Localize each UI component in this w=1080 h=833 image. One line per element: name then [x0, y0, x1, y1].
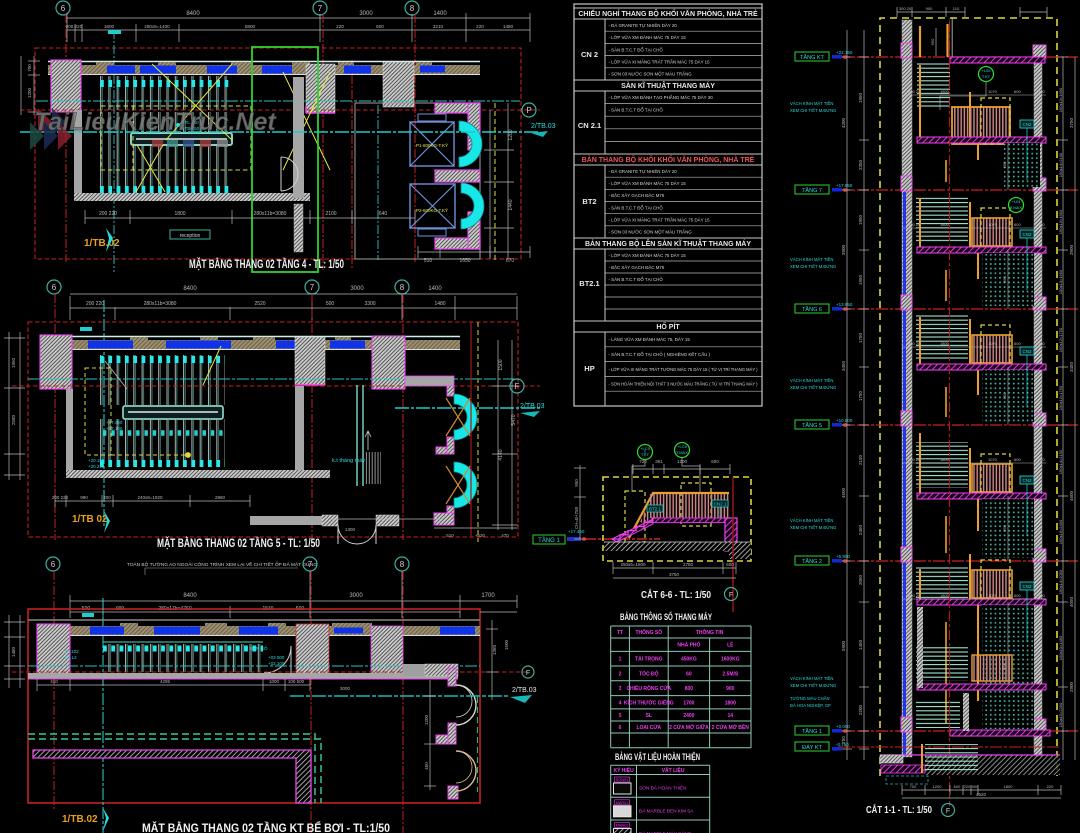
svg-text:- ĐÁ GRANITE TỰ NHIÊN DÀY 20: - ĐÁ GRANITE TỰ NHIÊN DÀY 20: [609, 169, 678, 174]
svg-text:470: 470: [501, 533, 509, 538]
svg-text:280x11b=3080: 280x11b=3080: [254, 211, 287, 217]
svg-text:+L04: +L04: [1011, 199, 1021, 204]
svg-text:5470: 5470: [511, 414, 517, 425]
svg-text:500: 500: [972, 784, 979, 789]
svg-text:MAR01: MAR01: [616, 801, 629, 805]
svg-text:VÁCH KÍNH MẶT TIỀN: VÁCH KÍNH MẶT TIỀN: [790, 518, 833, 523]
svg-text:2350: 2350: [858, 159, 863, 170]
svg-text:XEM CHI TIẾT M.ĐỨNG: XEM CHI TIẾT M.ĐỨNG: [790, 264, 836, 269]
svg-text:1/TB 02: 1/TB 02: [72, 514, 108, 525]
svg-text:MẶT BẰNG THANG 02 TẦNG 5 - T: MẶT BẰNG THANG 02 TẦNG 5 - TL: 1/50: [157, 537, 320, 550]
svg-text:- SƠN 03 NƯỚC SƠN MỘT MÀU TRẮN: - SƠN 03 NƯỚC SƠN MỘT MÀU TRẮNG: [609, 72, 693, 77]
svg-text:- LÁNG VỮA XM ĐÁNH MÁC 75, DÀY: - LÁNG VỮA XM ĐÁNH MÁC 75, DÀY 15: [609, 337, 691, 342]
svg-text:TẦNG 6: TẦNG 6: [802, 306, 822, 313]
svg-text:3750: 3750: [1069, 117, 1074, 128]
svg-text:150: 150: [1038, 593, 1045, 598]
svg-text:2900: 2900: [1069, 681, 1074, 692]
svg-text:ĐÁ MARBLE ĐEN KIM SA: ĐÁ MARBLE ĐEN KIM SA: [639, 807, 694, 813]
svg-text:1400: 1400: [428, 286, 442, 292]
svg-text:1200: 1200: [424, 714, 429, 725]
svg-text:1070: 1070: [988, 457, 998, 462]
svg-text:220: 220: [964, 784, 971, 789]
svg-text:+10.500: +10.500: [836, 418, 853, 423]
svg-text:200 220: 200 220: [86, 301, 104, 307]
svg-text:HP: HP: [584, 364, 594, 373]
svg-text:MẶT BẰNG THANG 02 TẦNG KT BỂ: MẶT BẰNG THANG 02 TẦNG KT BỂ BƠI - TL:1/…: [142, 822, 390, 833]
svg-text:1070: 1070: [988, 222, 998, 227]
svg-text:8: 8: [400, 560, 405, 569]
svg-text:1480: 1480: [11, 646, 16, 657]
svg-text:1700: 1700: [683, 700, 694, 706]
svg-text:CN2: CN2: [1022, 232, 1031, 237]
svg-text:- LỚP VỮA XM ĐÁNH MÁC 75 DÀY 1: - LỚP VỮA XM ĐÁNH MÁC 75 DÀY 15: [609, 253, 687, 258]
svg-text:2/TB.03: 2/TB.03: [531, 123, 556, 130]
svg-text:+20.216: +20.216: [88, 464, 105, 469]
svg-text:600: 600: [954, 784, 961, 789]
svg-text:4140: 4140: [498, 449, 504, 460]
svg-text:600: 600: [1014, 89, 1021, 94]
svg-text:1500: 1500: [498, 359, 504, 370]
svg-text:2.5M/S: 2.5M/S: [722, 671, 739, 677]
svg-text:CN2: CN2: [1022, 478, 1031, 483]
svg-text:2750: 2750: [683, 562, 694, 567]
svg-text:950: 950: [1002, 524, 1007, 531]
svg-text:700: 700: [27, 64, 32, 72]
svg-text:3000: 3000: [359, 11, 373, 17]
svg-text:720: 720: [639, 459, 647, 464]
svg-text:800: 800: [685, 686, 694, 692]
svg-text:+03.000: +03.000: [268, 655, 285, 660]
svg-text:P: P: [526, 106, 531, 115]
svg-text:361: 361: [655, 459, 663, 464]
svg-text:+630: +630: [475, 533, 486, 538]
svg-text:1750: 1750: [858, 390, 863, 401]
svg-text:3450: 3450: [1069, 361, 1074, 372]
svg-text:1800: 1800: [1004, 784, 1014, 789]
svg-text:2050: 2050: [858, 574, 863, 585]
svg-text:220: 220: [476, 24, 484, 29]
svg-text:110: 110: [953, 6, 960, 11]
svg-text:6: 6: [52, 283, 57, 292]
svg-text:600: 600: [1014, 593, 1021, 598]
svg-text:2200: 2200: [858, 704, 863, 715]
svg-text:3750: 3750: [669, 572, 680, 577]
svg-text:TẦNG KT: TẦNG KT: [800, 54, 824, 61]
svg-text:2520: 2520: [254, 301, 265, 307]
svg-text:1480: 1480: [434, 301, 445, 307]
svg-text:CN 2: CN 2: [581, 50, 598, 59]
svg-text:+LC5: +LC5: [677, 444, 687, 449]
svg-text:600: 600: [711, 459, 719, 464]
svg-text:KÝ HIỆU: KÝ HIỆU: [613, 766, 634, 774]
svg-text:2450: 2450: [858, 524, 863, 535]
svg-text:300 20: 300 20: [908, 89, 921, 94]
svg-text:- SƠN 03 NƯỚC SƠN MỘT MÀU TRẮN: - SƠN 03 NƯỚC SƠN MỘT MÀU TRẮNG: [609, 230, 693, 235]
svg-text:150: 150: [1038, 222, 1045, 227]
svg-text:300 20: 300 20: [908, 593, 921, 598]
svg-text:8400: 8400: [183, 286, 197, 292]
svg-text:- SÀN B.T.C.T ĐỔ TẠI CHỖ: - SÀN B.T.C.T ĐỔ TẠI CHỖ: [609, 277, 664, 282]
svg-text:1/TB.02: 1/TB.02: [62, 814, 98, 825]
svg-text:150x16=2450: 150x16=2450: [1058, 519, 1063, 544]
svg-text:200 220: 200 220: [52, 495, 69, 500]
svg-text:150x13=1950: 150x13=1950: [1058, 269, 1063, 294]
svg-text:1800: 1800: [940, 89, 950, 94]
svg-text:- SÀN B.T.C.T ĐỔ TẠI CHỖ: - SÀN B.T.C.T ĐỔ TẠI CHỖ: [609, 47, 664, 52]
svg-text:150x13=1950: 150x13=1950: [1058, 209, 1063, 234]
svg-text:950: 950: [930, 38, 935, 45]
svg-text:VẬT LIỆU: VẬT LIỆU: [662, 766, 685, 774]
svg-text:NHÀ PHỐ: NHÀ PHỐ: [677, 642, 700, 649]
svg-text:3: 3: [619, 686, 622, 692]
svg-text:BT2.1: BT2.1: [649, 507, 662, 512]
svg-text:BẢN THANG BỘ LÊN SÀN KĨ THUẬT: BẢN THANG BỘ LÊN SÀN KĨ THUẬT THANG MÁY: [585, 239, 751, 248]
svg-text:400: 400: [103, 495, 111, 500]
svg-text:CẮT 6-6 - TL: 1/50: CẮT 6-6 - TL: 1/50: [641, 588, 711, 601]
svg-text:1440: 1440: [508, 199, 514, 210]
svg-text:TaiLieuKienTruc.Net: TaiLieuKienTruc.Net: [34, 108, 277, 136]
svg-text:4295: 4295: [160, 679, 171, 684]
svg-text:3000: 3000: [350, 286, 364, 292]
svg-text:1650: 1650: [459, 258, 470, 264]
svg-text:1400: 1400: [433, 11, 447, 17]
svg-text:TẦNG 5: TẦNG 5: [802, 422, 822, 429]
svg-text:BẢNG VẬT LIỆU HOÀN THIỆN: BẢNG VẬT LIỆU HOÀN THIỆN: [615, 751, 700, 762]
svg-text:600: 600: [1014, 457, 1021, 462]
svg-text:1600KG: 1600KG: [721, 657, 740, 663]
svg-text:2100: 2100: [325, 211, 336, 217]
svg-text:TẢI TRỌNG: TẢI TRỌNG: [635, 656, 663, 663]
svg-text:CN2: CN2: [1022, 349, 1031, 354]
svg-text:1800: 1800: [940, 222, 950, 227]
svg-text:ĐÁ HOA NGHIỆP, GP: ĐÁ HOA NGHIỆP, GP: [790, 703, 831, 708]
svg-text:XEM CHI TIẾT M.ĐỨNG: XEM CHI TIẾT M.ĐỨNG: [790, 385, 836, 390]
svg-text:+17.100: +17.100: [106, 426, 123, 431]
svg-text:1800: 1800: [940, 341, 950, 346]
svg-text:LOẠI CỬA: LOẠI CỬA: [636, 724, 661, 731]
svg-text:450: 450: [424, 762, 429, 770]
svg-text:THÔNG SỐ: THÔNG SỐ: [635, 628, 662, 636]
svg-text:2: 2: [619, 671, 622, 677]
svg-text:4600: 4600: [841, 487, 846, 498]
svg-text:1480: 1480: [503, 24, 514, 29]
svg-text:300 20: 300 20: [908, 341, 921, 346]
svg-text:3000: 3000: [340, 686, 351, 691]
svg-text:8: 8: [410, 4, 415, 13]
svg-text:950: 950: [1002, 161, 1007, 168]
svg-text:ĐÁY KT: ĐÁY KT: [802, 744, 822, 751]
svg-text:- SÀN B.T.C.T ĐỔ TẠI CHỖ: - SÀN B.T.C.T ĐỔ TẠI CHỖ: [609, 205, 664, 210]
svg-text:4520: 4520: [976, 792, 987, 797]
svg-text:3450: 3450: [841, 360, 846, 371]
svg-text:T.MAX: T.MAX: [1010, 205, 1022, 210]
svg-text:280x11b=3080: 280x11b=3080: [144, 301, 177, 307]
svg-text:XEM CHI TIẾT M.ĐỨNG: XEM CHI TIẾT M.ĐỨNG: [790, 108, 836, 113]
svg-text:4600: 4600: [1069, 490, 1074, 501]
svg-text:F: F: [729, 592, 733, 599]
svg-text:1800: 1800: [940, 457, 950, 462]
svg-text:510: 510: [424, 258, 433, 264]
svg-text:+17.850: +17.850: [836, 183, 853, 188]
svg-text:4300: 4300: [841, 117, 846, 128]
svg-text:410: 410: [50, 679, 58, 684]
svg-text:k.t tháng máy: k.t tháng máy: [332, 458, 365, 464]
svg-text:BT2: BT2: [582, 197, 596, 206]
svg-text:CHIỀU RỘNG CỬA: CHIỀU RỘNG CỬA: [626, 684, 671, 692]
svg-text:1950: 1950: [858, 274, 863, 285]
svg-text:450KG: 450KG: [681, 657, 697, 663]
svg-text:5900: 5900: [841, 640, 846, 651]
svg-text:300 20: 300 20: [908, 222, 921, 227]
svg-text:VÁCH KÍNH MẶT TIỀN: VÁCH KÍNH MẶT TIỀN: [790, 378, 833, 383]
svg-text:3000: 3000: [349, 593, 363, 599]
svg-text:150x14=2150: 150x14=2150: [1058, 449, 1063, 474]
svg-text:2/TB.03: 2/TB.03: [512, 687, 537, 694]
svg-text:+20.150: +20.150: [88, 458, 105, 463]
svg-text:600: 600: [1014, 222, 1021, 227]
svg-text:1070: 1070: [988, 341, 998, 346]
svg-text:1200: 1200: [933, 784, 943, 789]
svg-text:220: 220: [336, 24, 344, 29]
svg-text:150: 150: [1038, 89, 1045, 94]
svg-text:SL: SL: [646, 713, 652, 719]
svg-text:100 500: 100 500: [288, 679, 305, 684]
svg-text:1750: 1750: [858, 332, 863, 343]
svg-text:TẦNG 1: TẦNG 1: [802, 728, 822, 735]
svg-text:+L05: +L05: [981, 68, 991, 73]
svg-text:150x14=2100: 150x14=2100: [1058, 152, 1063, 177]
svg-text:1070: 1070: [988, 593, 998, 598]
svg-text:950: 950: [574, 479, 579, 487]
svg-text:1200: 1200: [677, 459, 688, 464]
svg-text:150: 150: [1038, 457, 1045, 462]
svg-text:5: 5: [619, 713, 622, 719]
svg-text:- ĐÁ GRANITE TỰ NHIÊN DÀY 20: - ĐÁ GRANITE TỰ NHIÊN DÀY 20: [609, 23, 678, 28]
svg-text:2580: 2580: [11, 414, 16, 425]
svg-text:150x12=1750: 150x12=1750: [1058, 385, 1063, 410]
svg-text:250x6=1500: 250x6=1500: [621, 562, 646, 567]
svg-text:CẮT 1-1 - TL: 1/50: CẮT 1-1 - TL: 1/50: [866, 803, 932, 816]
svg-text:- LỚP VỮA XM ĐÁNH MÁC 75 DÀY 1: - LỚP VỮA XM ĐÁNH MÁC 75 DÀY 15: [609, 35, 687, 40]
svg-text:+13.950: +13.950: [836, 302, 853, 307]
svg-text:- LỚP VỮA XI MĂNG TRÁT TƯỜNG M: - LỚP VỮA XI MĂNG TRÁT TƯỜNG MÁC 75 DÀY …: [609, 367, 758, 372]
svg-text:TT: TT: [617, 630, 623, 636]
svg-text:+5.900: +5.900: [836, 554, 850, 559]
svg-text:+TB.L2: +TB.L2: [62, 655, 77, 660]
svg-text:900: 900: [726, 686, 735, 692]
svg-text:- LỚP VỮA XI MĂNG TRÁT TRẦN MÁ: - LỚP VỮA XI MĂNG TRÁT TRẦN MÁC 75 DÀY 1…: [609, 218, 711, 223]
svg-text:4050: 4050: [1069, 596, 1074, 607]
svg-text:- SÀN B.T.C.T ĐỔ TẠI CHỖ: - SÀN B.T.C.T ĐỔ TẠI CHỖ: [609, 108, 664, 113]
svg-text:1070: 1070: [988, 89, 998, 94]
svg-text:TƯỜNG MÀU CHẮN: TƯỜNG MÀU CHẮN: [790, 696, 830, 701]
svg-text:1: 1: [619, 657, 622, 663]
svg-text:TOÀN BỘ TƯỜNG AO NGOÀI CÔNG TR: TOÀN BỘ TƯỜNG AO NGOÀI CÔNG TRÌNH XEM LẠ…: [127, 561, 318, 568]
svg-text:8400: 8400: [186, 11, 200, 17]
svg-text:500: 500: [326, 301, 335, 307]
svg-text:750: 750: [841, 736, 846, 744]
svg-text:+0.000: +0.000: [836, 724, 850, 729]
svg-text:300 20: 300 20: [899, 6, 912, 11]
svg-text:- LỚP VỮA XM ĐÁNH MÁC 75 DÀY 1: - LỚP VỮA XM ĐÁNH MÁC 75 DÀY 15: [609, 181, 687, 186]
svg-text:1800: 1800: [725, 700, 736, 706]
svg-text:F: F: [946, 808, 950, 815]
svg-text:1360: 1360: [492, 644, 497, 655]
svg-text:- BẬC XÂY GẠCH ĐẶC M75: - BẬC XÂY GẠCH ĐẶC M75: [609, 265, 665, 270]
svg-text:3300: 3300: [364, 301, 375, 307]
svg-text:TỐC ĐỘ: TỐC ĐỘ: [639, 669, 659, 677]
svg-text:XEM CHI TIẾT M.ĐỨNG: XEM CHI TIẾT M.ĐỨNG: [790, 683, 836, 688]
svg-text:2400: 2400: [683, 713, 694, 719]
svg-text:2150: 2150: [858, 454, 863, 465]
svg-text:7: 7: [308, 560, 313, 569]
svg-text:200 220: 200 220: [66, 24, 83, 29]
svg-text:TẦNG 7: TẦNG 7: [802, 187, 822, 194]
svg-text:6: 6: [61, 4, 66, 13]
svg-text:THÔNG TIN: THÔNG TIN: [696, 628, 724, 636]
svg-text:280x5=1400: 280x5=1400: [144, 24, 170, 29]
svg-text:640: 640: [379, 211, 388, 217]
svg-text:990: 990: [80, 495, 88, 500]
svg-text:- LỚP VỮA XI MĂNG TRÁT TRẦN MÁ: - LỚP VỮA XI MĂNG TRÁT TRẦN MÁC 75 DÀY 1…: [609, 60, 711, 65]
svg-text:CN 2.1: CN 2.1: [578, 121, 601, 130]
svg-text:1/TB.02: 1/TB.02: [84, 238, 120, 249]
svg-text:+17.450: +17.450: [106, 420, 123, 425]
svg-text:T.KT: T.KT: [641, 452, 650, 457]
svg-text:MAR02: MAR02: [616, 824, 629, 828]
svg-text:BT2.1: BT2.1: [579, 279, 599, 288]
svg-text:SON01: SON01: [616, 778, 628, 782]
svg-text:SÀN KĨ THUẬT THANG MÁY: SÀN KĨ THUẬT THANG MÁY: [621, 81, 715, 90]
svg-text:TẦNG 2: TẦNG 2: [802, 558, 822, 565]
svg-text:- SƠN HOÀN THIỆN NỘI THẤT 3 NƯ: - SƠN HOÀN THIỆN NỘI THẤT 3 NƯỚC MÀU TRẮ…: [609, 382, 758, 387]
svg-text:150: 150: [1038, 341, 1045, 346]
svg-text:+LC5: +LC5: [640, 446, 650, 451]
svg-text:300 20: 300 20: [908, 457, 921, 462]
svg-text:700: 700: [910, 784, 917, 789]
svg-text:1800: 1800: [104, 24, 115, 29]
svg-text:150x13=1950: 150x13=1950: [1058, 87, 1063, 112]
svg-text:1500: 1500: [504, 639, 509, 650]
svg-text:6: 6: [619, 725, 622, 731]
svg-text:SƠN ĐÁ HOÀN THIỆN: SƠN ĐÁ HOÀN THIỆN: [639, 784, 687, 791]
svg-text:1700: 1700: [481, 593, 495, 599]
svg-text:950: 950: [1002, 392, 1007, 399]
svg-text:- BẬC XÂY GẠCH ĐẶC M75: - BẬC XÂY GẠCH ĐẶC M75: [609, 193, 665, 198]
svg-text:670: 670: [506, 258, 515, 264]
svg-text:1200: 1200: [27, 87, 32, 98]
svg-text:220: 220: [1047, 784, 1054, 789]
svg-text:P2-600KG-T.KỸ: P2-600KG-T.KỸ: [416, 207, 448, 213]
svg-text:KÍCH THƯỚC GIẾNG: KÍCH THƯỚC GIẾNG: [624, 698, 674, 706]
svg-text:CN2.1: CN2.1: [714, 502, 727, 507]
svg-text:XEM CHI TIẾT M.ĐỨNG: XEM CHI TIẾT M.ĐỨNG: [790, 525, 836, 530]
svg-text:+22.150: +22.150: [836, 50, 853, 55]
svg-text:T.MAX: T.MAX: [676, 450, 688, 455]
svg-text:CH=B+750: CH=B+750: [574, 506, 579, 529]
svg-text:2960: 2960: [215, 495, 226, 500]
svg-text:8400: 8400: [183, 593, 197, 599]
svg-text:150x12=1750: 150x12=1750: [1058, 327, 1063, 352]
svg-text:4: 4: [619, 700, 622, 706]
svg-text:5800: 5800: [245, 24, 256, 29]
svg-text:2 CỬA MỞ BÊN: 2 CỬA MỞ BÊN: [712, 723, 750, 731]
svg-text:SÀN GỖ: SÀN GỖ: [250, 645, 268, 651]
svg-text:8: 8: [400, 283, 405, 292]
svg-text:7: 7: [318, 4, 323, 13]
svg-text:1200: 1200: [508, 129, 514, 140]
svg-text:2 CỬA MỞ GIỮA: 2 CỬA MỞ GIỮA: [669, 724, 709, 731]
svg-text:CN2: CN2: [1022, 122, 1031, 127]
svg-text:+TL.102: +TL.102: [62, 649, 79, 654]
svg-text:P1-600KG-T.KỸ: P1-600KG-T.KỸ: [416, 142, 448, 148]
svg-text:3900: 3900: [1069, 244, 1074, 255]
svg-text:VÁCH KÍNH MẶT TIỀN: VÁCH KÍNH MẶT TIỀN: [790, 257, 833, 262]
svg-text:600: 600: [1014, 341, 1021, 346]
svg-text:VÁCH KÍNH MẶT TIỀN: VÁCH KÍNH MẶT TIỀN: [790, 676, 833, 681]
svg-text:CN2: CN2: [1022, 584, 1031, 589]
svg-text:600: 600: [726, 562, 734, 567]
svg-text:950: 950: [1002, 275, 1007, 282]
svg-text:600: 600: [376, 24, 384, 29]
svg-text:2/TB.03: 2/TB.03: [520, 403, 545, 410]
svg-text:240x8=1920: 240x8=1920: [138, 495, 163, 500]
svg-text:VÁCH KÍNH MẶT TIỀN: VÁCH KÍNH MẶT TIỀN: [790, 101, 833, 106]
svg-text:1950: 1950: [11, 357, 16, 368]
svg-text:1450: 1450: [858, 639, 863, 650]
svg-text:900: 900: [926, 6, 933, 11]
svg-text:- SÀN B.T.C.T ĐỔ TẠI CHỖ ( NGH: - SÀN B.T.C.T ĐỔ TẠI CHỖ ( NGHIÊNG KẾT C…: [609, 352, 711, 357]
svg-text:+02.100: +02.100: [268, 661, 285, 666]
svg-text:BẢNG THÔNG SỐ THANG MÁY: BẢNG THÔNG SỐ THANG MÁY: [620, 611, 712, 622]
svg-text:3900: 3900: [841, 244, 846, 255]
svg-text:F: F: [526, 670, 530, 677]
svg-text:150x10=1450: 150x10=1450: [1058, 635, 1063, 660]
svg-text:MẶT BẰNG THANG 02 TẦNG 4 -: MẶT BẰNG THANG 02 TẦNG 4 - TL: 1/50: [189, 258, 344, 271]
svg-text:150x14=2050: 150x14=2050: [1058, 569, 1063, 594]
svg-text:reception: reception: [180, 233, 201, 239]
svg-text:1950: 1950: [858, 92, 863, 103]
svg-text:14: 14: [728, 713, 734, 719]
svg-text:60: 60: [686, 671, 692, 677]
svg-text:- LỚP VỮA XM ĐÁNH TẠO PHẲNG MÁ: - LỚP VỮA XM ĐÁNH TẠO PHẲNG MÁC 75 DÀY 3…: [609, 95, 714, 100]
svg-text:6: 6: [51, 560, 56, 569]
svg-text:200 220: 200 220: [99, 211, 117, 217]
svg-text:1800: 1800: [940, 593, 950, 598]
svg-text:T.KT: T.KT: [982, 74, 991, 79]
svg-text:1300: 1300: [345, 527, 356, 532]
svg-text:LẺ: LẺ: [727, 642, 734, 649]
svg-text:TẦNG 1: TẦNG 1: [538, 537, 560, 544]
svg-text:1950: 1950: [858, 214, 863, 225]
svg-text:3210: 3210: [433, 24, 444, 29]
svg-text:1800: 1800: [174, 211, 185, 217]
svg-text:7: 7: [310, 283, 315, 292]
svg-text:510: 510: [446, 533, 454, 538]
svg-text:150x15=2250: 150x15=2250: [1058, 702, 1063, 727]
svg-text:1000: 1000: [269, 679, 280, 684]
svg-text:F: F: [515, 382, 520, 391]
